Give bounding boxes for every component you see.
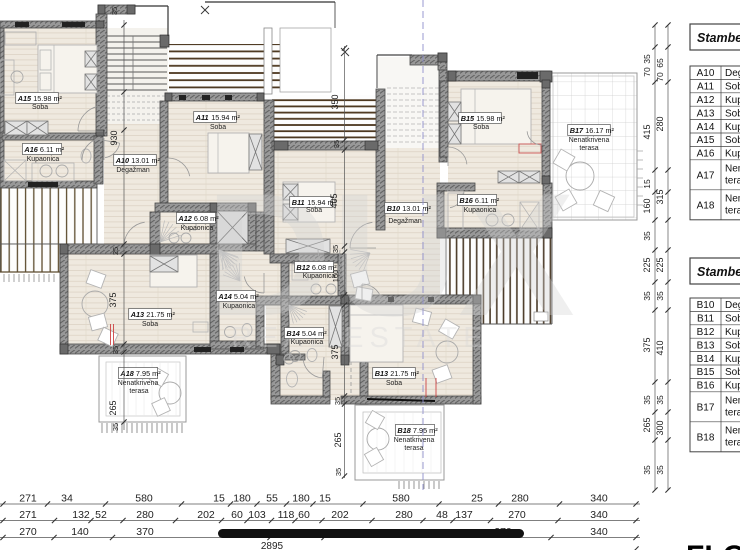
svg-text:B10: B10 — [387, 204, 400, 213]
svg-text:280: 280 — [511, 493, 529, 505]
svg-text:15.98 m²: 15.98 m² — [33, 94, 62, 103]
svg-text:Soba: Soba — [210, 124, 226, 131]
svg-text:Soba: Soba — [32, 104, 48, 111]
svg-text:B12: B12 — [697, 327, 715, 338]
svg-text:Degažman: Degažman — [388, 218, 421, 225]
svg-text:140: 140 — [71, 526, 89, 538]
svg-text:315: 315 — [655, 189, 665, 204]
svg-text:265: 265 — [108, 400, 118, 415]
svg-text:B15: B15 — [697, 367, 715, 378]
svg-text:A12: A12 — [177, 214, 191, 223]
svg-text:A13: A13 — [130, 310, 144, 319]
svg-text:Kupaonica: Kupaonica — [464, 207, 497, 214]
svg-text:A16: A16 — [23, 145, 38, 154]
svg-text:375: 375 — [642, 337, 652, 352]
svg-text:7.95 m²: 7.95 m² — [413, 426, 438, 435]
svg-text:35: 35 — [110, 7, 119, 15]
svg-text:terasa: terasa — [579, 145, 598, 152]
svg-text:A14: A14 — [217, 292, 231, 301]
svg-text:Nenatkrivena: Nenatkrivena — [725, 425, 740, 436]
svg-text:Kupaonica: Kupaonica — [725, 149, 740, 160]
svg-text:B16: B16 — [697, 381, 715, 392]
svg-text:Soba: Soba — [725, 314, 740, 325]
svg-text:5.04 m²: 5.04 m² — [302, 329, 327, 338]
svg-text:180: 180 — [233, 493, 251, 505]
svg-text:375: 375 — [330, 344, 340, 359]
svg-text:48: 48 — [436, 509, 448, 521]
svg-text:A16: A16 — [697, 149, 715, 160]
svg-text:930: 930 — [109, 130, 119, 145]
svg-text:35: 35 — [642, 395, 652, 405]
svg-text:280: 280 — [136, 509, 154, 521]
svg-text:180: 180 — [292, 493, 310, 505]
svg-text:B18: B18 — [397, 426, 411, 435]
svg-text:Soba: Soba — [473, 124, 489, 131]
svg-text:340: 340 — [590, 526, 608, 538]
svg-text:15.98 m²: 15.98 m² — [476, 114, 505, 123]
svg-text:Kupaonica: Kupaonica — [725, 95, 740, 106]
svg-text:A15: A15 — [697, 135, 715, 146]
svg-text:B12: B12 — [296, 263, 309, 272]
svg-text:Soba: Soba — [725, 82, 740, 93]
svg-text:6.11 m²: 6.11 m² — [40, 145, 65, 154]
svg-text:340: 340 — [590, 493, 608, 505]
svg-text:25: 25 — [471, 493, 483, 505]
svg-text:137: 137 — [455, 509, 473, 521]
svg-text:55: 55 — [266, 493, 278, 505]
svg-text:270: 270 — [19, 526, 37, 538]
svg-text:B17: B17 — [570, 126, 584, 135]
svg-text:270: 270 — [508, 509, 526, 521]
svg-text:Soba: Soba — [142, 321, 158, 328]
svg-text:B13: B13 — [375, 369, 388, 378]
svg-text:Kupaonica: Kupaonica — [27, 156, 60, 163]
svg-text:13.01 m²: 13.01 m² — [131, 156, 160, 165]
svg-text:Stambena: Stambena — [697, 31, 740, 45]
svg-text:REAL ESTATE: REAL ESTATE — [231, 322, 488, 354]
svg-text:Soba: Soba — [725, 108, 740, 119]
svg-text:15: 15 — [319, 493, 331, 505]
svg-text:Kupaonica: Kupaonica — [223, 303, 256, 310]
svg-text:15: 15 — [213, 493, 225, 505]
svg-text:375: 375 — [108, 292, 118, 307]
svg-text:35: 35 — [655, 291, 665, 301]
svg-text:Degažman: Degažman — [116, 167, 149, 174]
svg-text:580: 580 — [392, 493, 410, 505]
svg-text:350: 350 — [330, 94, 340, 109]
svg-text:B10: B10 — [697, 300, 715, 311]
svg-text:271: 271 — [19, 509, 37, 521]
svg-text:34: 34 — [61, 493, 73, 505]
svg-text:16.17 m²: 16.17 m² — [585, 126, 614, 135]
svg-text:Kupaonica: Kupaonica — [725, 354, 740, 365]
svg-text:15.94 m²: 15.94 m² — [211, 113, 240, 122]
svg-text:A10: A10 — [115, 156, 129, 165]
svg-text:B15: B15 — [461, 114, 475, 123]
svg-text:35: 35 — [642, 465, 652, 475]
svg-text:terasa: terasa — [404, 445, 423, 452]
svg-text:60: 60 — [298, 509, 310, 521]
svg-text:6.08 m²: 6.08 m² — [194, 214, 219, 223]
svg-text:B16: B16 — [459, 196, 473, 205]
svg-text:21.75 m²: 21.75 m² — [146, 310, 175, 319]
svg-text:Nenatkrivena: Nenatkrivena — [394, 437, 435, 444]
svg-text:415: 415 — [642, 124, 652, 139]
svg-text:340: 340 — [590, 509, 608, 521]
svg-text:A11: A11 — [697, 82, 714, 93]
svg-text:160: 160 — [642, 198, 652, 213]
svg-text:35: 35 — [111, 423, 120, 431]
svg-text:A18: A18 — [119, 369, 134, 378]
svg-text:A11: A11 — [195, 113, 209, 122]
svg-text:Kupaonica: Kupaonica — [725, 381, 740, 392]
svg-text:35: 35 — [332, 140, 341, 148]
svg-text:Nenatkrivena: Nenatkrivena — [725, 163, 740, 174]
svg-text:35: 35 — [642, 291, 652, 301]
svg-text:A13: A13 — [697, 108, 715, 119]
svg-text:225: 225 — [655, 257, 665, 272]
svg-text:A18: A18 — [697, 200, 715, 211]
svg-text:A15: A15 — [17, 94, 32, 103]
svg-text:25: 25 — [111, 247, 120, 255]
svg-text:terasa: terasa — [725, 407, 740, 418]
svg-text:Nenatkrivena: Nenatkrivena — [725, 193, 740, 204]
svg-text:Soba: Soba — [386, 380, 402, 387]
svg-text:70: 70 — [642, 67, 652, 77]
svg-text:132: 132 — [72, 509, 90, 521]
svg-text:35: 35 — [333, 397, 342, 405]
svg-text:terasa: terasa — [725, 175, 740, 186]
svg-text:7.95 m²: 7.95 m² — [136, 369, 161, 378]
svg-text:B18: B18 — [697, 432, 715, 443]
svg-text:B14: B14 — [697, 354, 715, 365]
svg-text:B11: B11 — [697, 314, 714, 325]
svg-text:A10: A10 — [697, 68, 715, 79]
svg-text:B11: B11 — [292, 198, 305, 207]
svg-text:35: 35 — [331, 245, 340, 253]
svg-text:Soba: Soba — [725, 135, 740, 146]
svg-text:6.11 m²: 6.11 m² — [475, 196, 500, 205]
svg-text:terasa: terasa — [725, 437, 740, 448]
svg-text:271: 271 — [19, 493, 37, 505]
svg-text:Nenatkrivena: Nenatkrivena — [569, 137, 610, 144]
svg-text:Kupaonica: Kupaonica — [725, 327, 740, 338]
svg-text:300: 300 — [655, 420, 665, 435]
svg-text:405: 405 — [329, 193, 339, 208]
svg-text:118: 118 — [278, 509, 295, 521]
svg-text:5.04 m²: 5.04 m² — [234, 292, 259, 301]
svg-text:Degažman: Degažman — [725, 68, 740, 79]
svg-text:Soba: Soba — [725, 340, 740, 351]
svg-text:A17: A17 — [697, 170, 715, 181]
svg-text:410: 410 — [655, 340, 665, 355]
svg-text:280: 280 — [655, 116, 665, 131]
svg-text:terasa: terasa — [129, 388, 148, 395]
svg-text:65: 65 — [655, 58, 665, 68]
svg-text:15: 15 — [642, 179, 652, 189]
svg-text:Soba: Soba — [306, 207, 322, 214]
svg-text:35: 35 — [655, 465, 665, 475]
svg-text:265: 265 — [642, 417, 652, 432]
svg-text:Kupaonica: Kupaonica — [291, 339, 324, 346]
svg-text:A14: A14 — [697, 122, 715, 133]
svg-text:Kupaonica: Kupaonica — [725, 122, 740, 133]
svg-text:Kupaonica: Kupaonica — [181, 225, 214, 232]
svg-text:B14: B14 — [286, 329, 299, 338]
svg-text:52: 52 — [95, 509, 107, 521]
svg-text:21.75 m²: 21.75 m² — [390, 369, 419, 378]
svg-text:160: 160 — [331, 270, 340, 283]
svg-text:60: 60 — [231, 509, 243, 521]
svg-text:370: 370 — [136, 526, 154, 538]
svg-text:35: 35 — [111, 346, 120, 354]
svg-text:280: 280 — [395, 509, 413, 521]
svg-text:202: 202 — [197, 509, 215, 521]
svg-text:202: 202 — [331, 509, 349, 521]
svg-text:FLOOR PLAN: FLOOR PLAN — [686, 540, 740, 550]
svg-text:580: 580 — [135, 493, 153, 505]
svg-text:13.01 m²: 13.01 m² — [402, 204, 431, 213]
svg-text:35: 35 — [334, 468, 343, 476]
svg-text:B13: B13 — [697, 340, 715, 351]
svg-text:225: 225 — [642, 257, 652, 272]
svg-text:B17: B17 — [697, 402, 715, 413]
svg-text:103: 103 — [248, 509, 266, 521]
svg-text:Soba: Soba — [725, 367, 740, 378]
svg-text:Degažman: Degažman — [725, 300, 740, 311]
svg-text:35: 35 — [655, 395, 665, 405]
svg-text:Stambena: Stambena — [697, 265, 740, 279]
svg-text:Nenatkrivena: Nenatkrivena — [725, 395, 740, 406]
svg-text:265: 265 — [333, 432, 343, 447]
svg-text:35: 35 — [642, 231, 652, 241]
svg-text:terasa: terasa — [725, 205, 740, 216]
svg-text:A12: A12 — [697, 95, 715, 106]
svg-text:35: 35 — [642, 54, 652, 64]
svg-text:2895: 2895 — [261, 541, 284, 550]
